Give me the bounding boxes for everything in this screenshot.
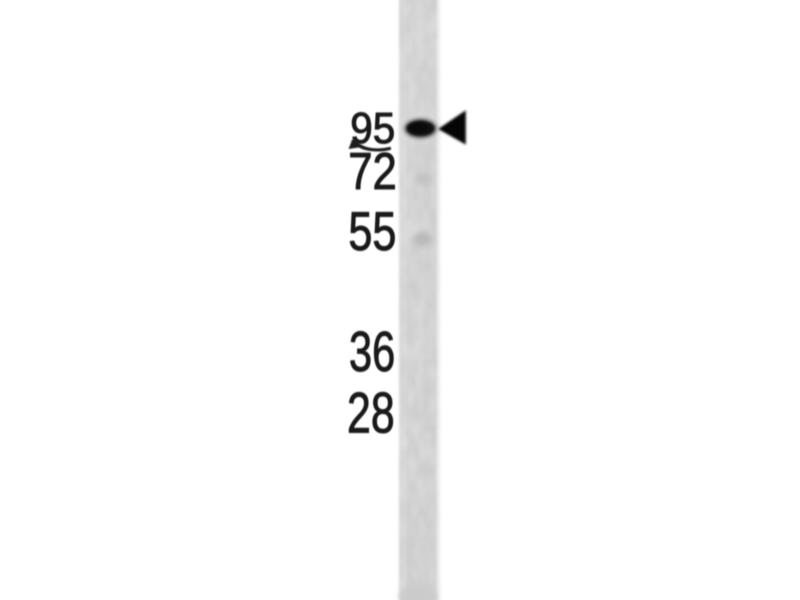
svg-text:72: 72 (348, 143, 397, 200)
svg-text:36: 36 (349, 320, 395, 384)
svg-text:55: 55 (348, 201, 396, 262)
svg-text:28: 28 (347, 380, 395, 445)
